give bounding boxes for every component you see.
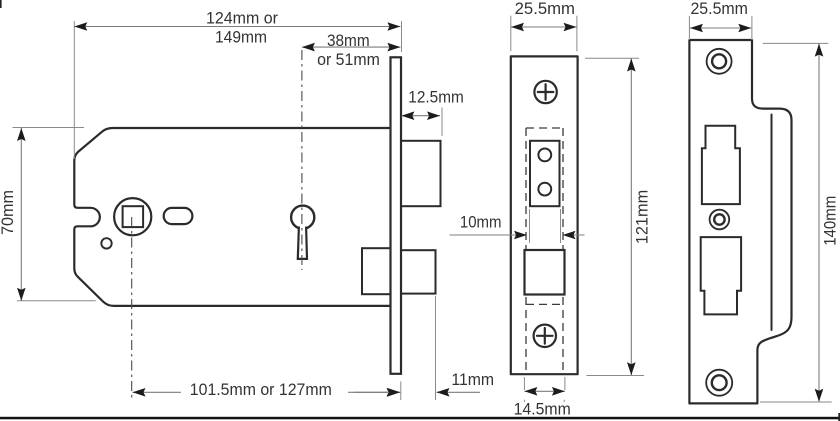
svg-text:or 51mm: or 51mm [317, 51, 380, 69]
svg-text:140mm: 140mm [822, 196, 840, 246]
svg-text:121mm: 121mm [634, 190, 652, 245]
svg-text:101.5mm or 127mm: 101.5mm or 127mm [190, 381, 332, 399]
svg-text:70mm: 70mm [0, 190, 17, 235]
svg-text:149mm: 149mm [215, 29, 267, 47]
svg-text:11mm: 11mm [451, 371, 494, 389]
svg-text:25.5mm: 25.5mm [690, 0, 748, 18]
svg-text:12.5mm: 12.5mm [408, 88, 464, 106]
svg-text:14.5mm: 14.5mm [514, 401, 571, 419]
svg-text:25.5mm: 25.5mm [515, 0, 575, 18]
svg-text:10mm: 10mm [460, 214, 502, 232]
svg-text:38mm: 38mm [327, 32, 370, 50]
svg-text:124mm or: 124mm or [206, 9, 278, 27]
